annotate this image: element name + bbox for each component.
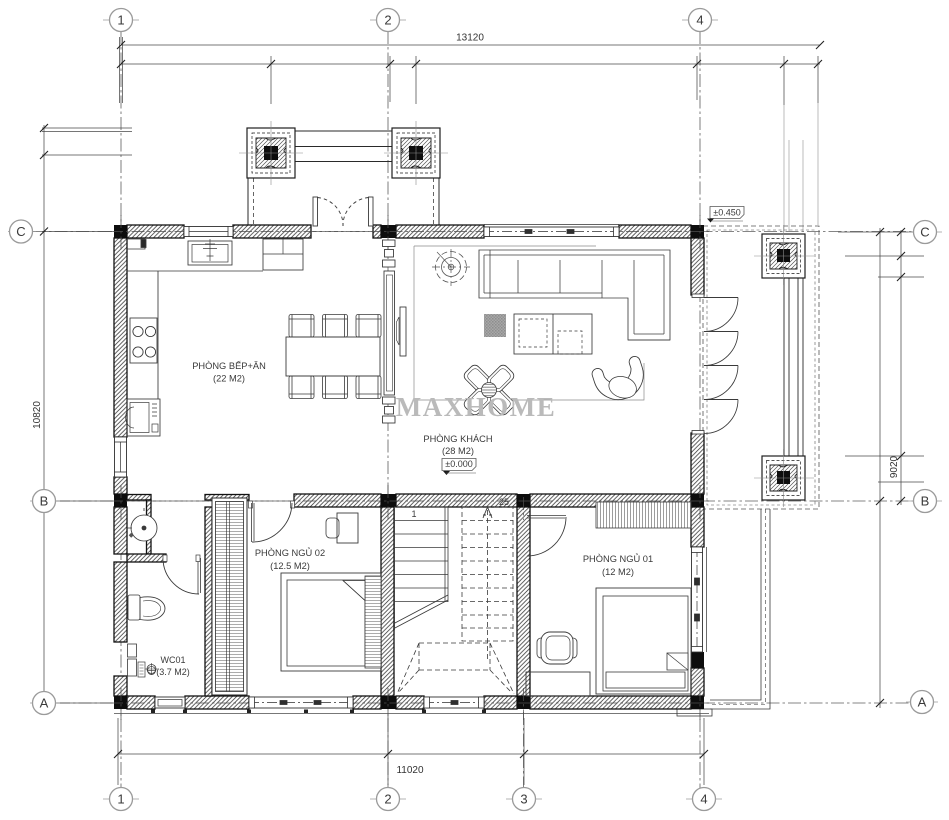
svg-text:13120: 13120	[456, 33, 484, 44]
svg-text:PHÒNG NGỦ 02: PHÒNG NGỦ 02	[255, 547, 325, 558]
svg-text:C: C	[920, 225, 929, 240]
svg-text:B: B	[921, 494, 930, 509]
svg-text:MAXHOME: MAXHOME	[396, 392, 556, 422]
svg-text:(28 M2): (28 M2)	[442, 446, 474, 456]
svg-text:4: 4	[700, 792, 707, 807]
svg-text:11020: 11020	[396, 765, 424, 776]
svg-text:±0.000: ±0.000	[445, 459, 472, 469]
svg-text:±0.450: ±0.450	[713, 208, 740, 218]
svg-text:(22 M2): (22 M2)	[213, 374, 245, 384]
svg-text:4: 4	[696, 13, 703, 28]
svg-text:(3.7 M2): (3.7 M2)	[156, 667, 190, 677]
svg-text:1: 1	[411, 509, 416, 519]
svg-text:A: A	[918, 695, 927, 710]
svg-text:B: B	[40, 494, 49, 509]
svg-text:10820: 10820	[32, 401, 43, 429]
svg-text:PHÒNG NGỦ 01: PHÒNG NGỦ 01	[583, 553, 653, 564]
svg-text:PHÒNG KHÁCH: PHÒNG KHÁCH	[423, 434, 492, 444]
svg-text:9020: 9020	[889, 455, 900, 478]
svg-text:1: 1	[117, 792, 124, 807]
svg-text:C: C	[16, 224, 25, 239]
svg-text:(12.5 M2): (12.5 M2)	[270, 561, 310, 571]
svg-text:25: 25	[499, 497, 509, 507]
svg-text:2: 2	[384, 792, 391, 807]
svg-text:2: 2	[384, 13, 391, 28]
svg-text:PHÒNG BẾP+ĂN: PHÒNG BẾP+ĂN	[192, 361, 266, 371]
svg-text:WC01: WC01	[160, 655, 185, 665]
svg-text:(12 M2): (12 M2)	[602, 567, 634, 577]
svg-text:A: A	[40, 696, 49, 711]
svg-text:1: 1	[117, 13, 124, 28]
svg-text:3: 3	[520, 792, 527, 807]
